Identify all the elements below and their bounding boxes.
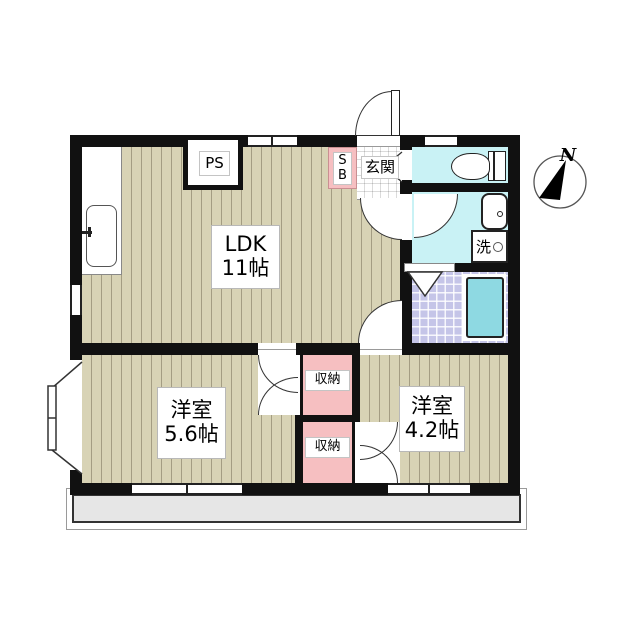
laundry-faucet-icon <box>493 242 503 252</box>
balcony <box>72 494 521 523</box>
compass: N <box>528 140 598 214</box>
entrance-door-leaf <box>391 90 400 136</box>
bathtub <box>466 277 504 338</box>
bedroom-left-label: 洋室 5.6帖 <box>157 387 226 459</box>
bay-window <box>44 352 89 484</box>
bath-door-fold <box>406 268 446 302</box>
toilet-tank <box>488 151 506 181</box>
wall-toilet-washroom <box>400 183 520 192</box>
kitchen-sink <box>86 205 117 267</box>
ps-label: PS <box>199 151 230 176</box>
wall-closet-front-top <box>300 355 303 415</box>
faucet-handle-icon <box>88 227 91 237</box>
entrance-door-arc <box>355 91 392 136</box>
toilet-bowl <box>451 153 490 180</box>
laundry-pan: 洗 <box>471 230 508 263</box>
closet-bottom-label: 収納 <box>305 437 350 458</box>
kitchen-side-window <box>70 285 82 315</box>
compass-north-label: N <box>559 145 578 166</box>
balcony-window-left-tick <box>186 483 188 495</box>
closet-top-label: 収納 <box>305 370 350 391</box>
bedroom-right-label: 洋室 4.2帖 <box>399 386 465 452</box>
entrance-label: 玄関 <box>361 156 399 179</box>
toilet-top-window <box>425 135 457 147</box>
ldk-label: LDK 11帖 <box>211 225 280 289</box>
laundry-label: 洗 <box>476 236 491 257</box>
wall-closet-right <box>352 343 360 422</box>
ldk-top-window-tick <box>271 135 273 147</box>
bedroom-left-doorway-line <box>258 349 296 350</box>
washbasin <box>481 193 508 230</box>
entrance-doorway <box>357 135 400 147</box>
floor-plan: 洗 S B PS 玄関 LDK 11帖 洋室 5.6帖 洋室 4.2 <box>0 0 640 640</box>
balcony-window-right-tick <box>428 483 430 495</box>
wall-between-closets <box>295 415 360 422</box>
washbasin-drain-icon <box>497 211 503 217</box>
toilet-tank-line <box>493 152 495 180</box>
bedroom-right-doorway-line <box>360 349 402 350</box>
shoebox: S B <box>328 147 357 189</box>
shoebox-label: S B <box>333 152 352 185</box>
wall-closet-left <box>295 415 303 483</box>
